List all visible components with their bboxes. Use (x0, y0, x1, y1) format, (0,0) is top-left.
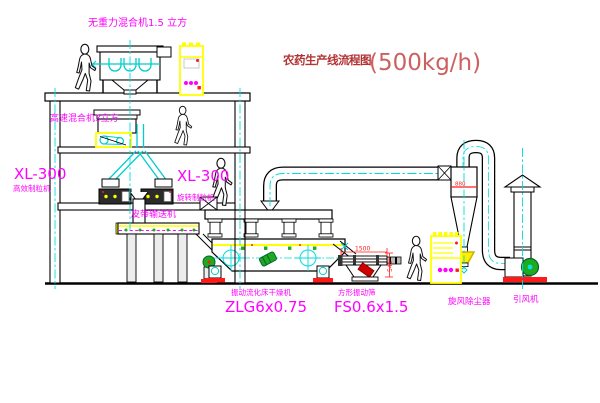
cyclone-inlet-transition (438, 166, 451, 180)
diagram-title-capacity: (500kg/h) (369, 50, 481, 76)
roof-slab (45, 93, 250, 101)
label-granulator-right-model: XL-300 (177, 167, 229, 185)
label-belt-conveyor: 皮带输送机 (131, 208, 176, 220)
label-dryer-model: ZLG6x0.75 (225, 298, 307, 316)
knob-icon (184, 81, 188, 85)
knob-icon (443, 268, 447, 272)
label-high-speed-mixer: 高速混合机3立方 (50, 112, 119, 124)
dim-cyclone-mark: 880 (455, 182, 466, 188)
knob-icon (449, 268, 453, 272)
label-screen-model: FS0.6x1.5 (334, 298, 408, 316)
diagram-title: 农药生产线流程图 (282, 53, 371, 67)
cad-flow-diagram: 农药生产线流程图 (500kg/h) 无重力混合机1.5 立方 高速混合机3立方… (0, 0, 600, 403)
label-dryer-name: 振动流化床干燥机 (231, 287, 291, 297)
diagram-canvas: 农药生产线流程图 (500kg/h) 无重力混合机1.5 立方 高速混合机3立方… (0, 0, 600, 403)
granulator-right (141, 189, 173, 204)
label-gravity-mixer: 无重力混合机1.5 立方 (88, 16, 187, 29)
indicator-light-icon (196, 59, 199, 62)
granulator-left (99, 189, 131, 204)
knob-icon (189, 81, 193, 85)
knob-icon (438, 268, 442, 272)
label-screen-name: 方形振动筛 (338, 287, 376, 297)
label-granulator-left-model: XL-300 (14, 165, 66, 183)
label-granulator-left-name: 高效制粒机 (13, 183, 51, 193)
label-fan: 引风机 (513, 294, 539, 305)
label-cyclone: 旋风除尘器 (448, 296, 491, 307)
label-granulator-right-name: 旋转制粒机 (177, 192, 215, 202)
dim-screen-length: 1500 (355, 246, 370, 253)
knob-icon (194, 81, 198, 85)
indicator-light-icon (455, 242, 458, 245)
control-cabinet-top (180, 43, 203, 96)
floor2-slab (58, 147, 250, 153)
dim-screen-height: 541 (387, 260, 394, 272)
control-cabinet-ground (431, 232, 461, 283)
